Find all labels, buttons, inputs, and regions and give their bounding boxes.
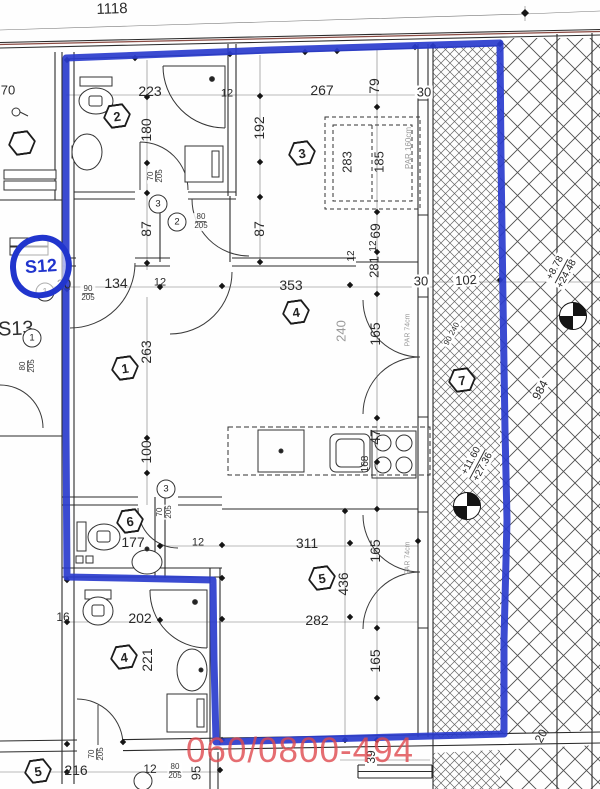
kitchen (228, 427, 430, 478)
unit-badge-label: S12 (24, 255, 57, 278)
watermark-text: 060/0800-494 (150, 731, 450, 771)
dining-table (325, 117, 420, 209)
floor-plan-canvas: S12 S13 111870223122677930180192283185PA… (0, 0, 600, 789)
toilet-tank (80, 77, 112, 86)
shower (163, 66, 225, 128)
plan-linework (0, 0, 600, 789)
sink (72, 134, 102, 170)
terrace-hatch (433, 38, 600, 789)
neighbor-unit-label: S13 (0, 317, 34, 341)
